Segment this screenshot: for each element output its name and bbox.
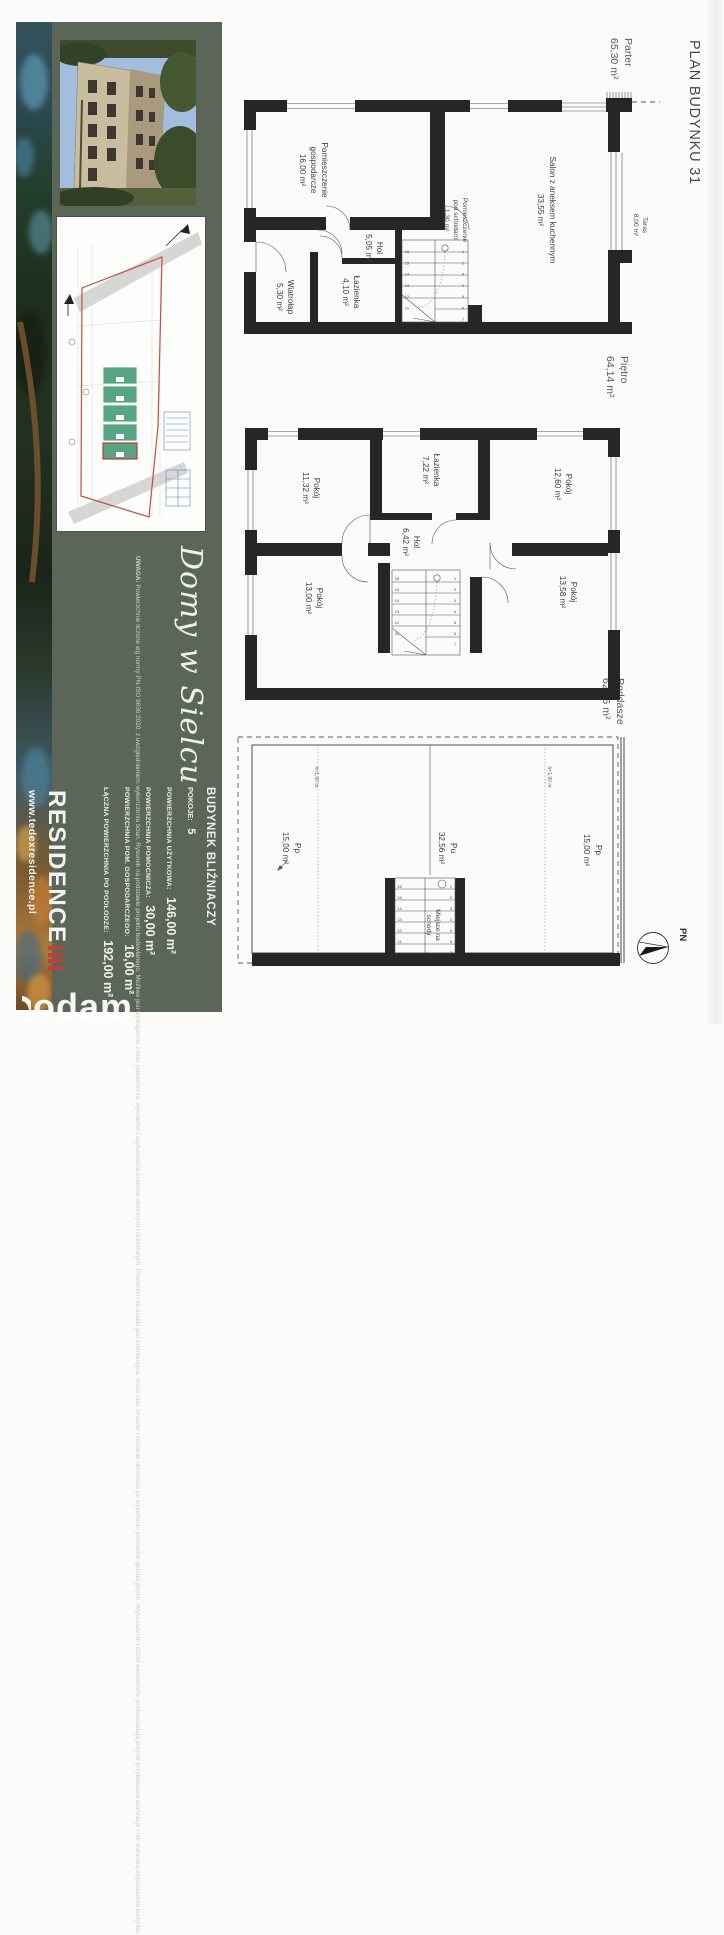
- building-type: BUDYNEK BLIŹNIACZY: [204, 787, 216, 997]
- page-title: PLAN BUDYNKU 31: [686, 40, 702, 185]
- tree-symbols: [69, 339, 89, 445]
- room-label: Pokój: [315, 588, 324, 609]
- svg-text:3: 3: [462, 272, 465, 277]
- svg-text:16: 16: [397, 884, 402, 889]
- svg-text:4: 4: [450, 917, 453, 922]
- svg-text:5: 5: [454, 620, 457, 625]
- room-area: 12,60 m²: [553, 468, 562, 501]
- room-area: 13,58 m²: [558, 576, 567, 609]
- floor-plan-parter: 1234567 161514131211 Pomieszczenie gospo…: [230, 90, 670, 348]
- hatch-ticks: [607, 92, 631, 98]
- svg-text:3: 3: [450, 906, 453, 911]
- svg-text:7: 7: [462, 317, 465, 322]
- room-label: Pokój: [564, 474, 573, 495]
- window: [248, 470, 253, 530]
- svg-text:2: 2: [450, 895, 453, 900]
- room-area: 1,30 m²: [443, 209, 450, 232]
- legal-note: UWAGA: Powierzchnie liczone wg normy PN-…: [132, 556, 142, 790]
- room-area: 15,00 m²: [582, 834, 591, 867]
- building-blocks: [103, 367, 137, 459]
- room-label: Pp: [594, 845, 603, 855]
- room-area: 11,32 m²: [301, 472, 310, 504]
- room-label: Hol: [412, 536, 421, 548]
- svg-text:5: 5: [462, 294, 465, 299]
- site-plan-drawing: [56, 216, 206, 532]
- room-label: Pp: [293, 843, 302, 853]
- logo-bar-icon: [48, 946, 63, 950]
- window: [611, 457, 616, 530]
- room-label: Salon z aneksem kuchennym: [548, 157, 557, 264]
- height-note: h=1,90 m: [313, 767, 319, 788]
- room-label: Łazienka: [432, 454, 441, 487]
- room-label: Miejsce na: [434, 909, 441, 941]
- stair-numbers: 161514131211: [397, 884, 402, 944]
- room-area: 6,42 m²: [401, 528, 410, 556]
- svg-text:3: 3: [454, 598, 457, 603]
- svg-text:13: 13: [395, 609, 400, 614]
- spec-row: POWIERZCHNIA POMOCNICZA: 30,00 m²: [141, 787, 159, 997]
- room-labels-pietro: Pokój 11,32 m² Łazienka 7,22 m² Pokój 12…: [301, 454, 578, 615]
- svg-text:11: 11: [405, 306, 410, 311]
- corner-block: [606, 98, 632, 112]
- room-label: Wiatrołap: [286, 280, 295, 315]
- note-title: UWAGA:: [134, 556, 141, 583]
- door-arcs: [342, 515, 516, 603]
- room-area: 4,10 m²: [341, 278, 350, 306]
- svg-text:14: 14: [397, 906, 402, 911]
- spec-row: POWIERZCHNIA POM. GOSPODARCZEGO: 16,00 m…: [120, 787, 138, 997]
- svg-text:1: 1: [462, 249, 465, 254]
- room-area: 15,00 m²: [281, 832, 290, 865]
- terrace-door-glazing: [611, 152, 616, 250]
- logo-text: RESIDENCE: [43, 790, 70, 944]
- svg-text:12: 12: [395, 620, 400, 625]
- room-label: Taras: [641, 217, 648, 234]
- logo-bar-icon: [48, 966, 63, 970]
- svg-text:16: 16: [405, 249, 410, 254]
- room-area: 5,05 m²: [364, 234, 373, 262]
- spec-row: POWIERZCHNIA UŻYTKOWA: 146,00 m²: [162, 787, 180, 997]
- floor-header-parter: Parter 65,30 m²: [607, 38, 634, 79]
- rooms-count-row: POKOJE: 5: [183, 787, 201, 997]
- room-area: 13,00 m²: [304, 582, 313, 615]
- site-plan-thumbnail: [56, 216, 206, 532]
- window: [248, 575, 253, 635]
- room-area: 33,55 m²: [536, 194, 545, 227]
- room-label: Pokój: [569, 582, 578, 603]
- stair-numbers: 161514131211: [395, 576, 400, 636]
- staircase: 1234567 161514131211: [402, 240, 468, 322]
- portal-watermark: odam: [22, 986, 133, 1028]
- svg-text:15: 15: [397, 895, 402, 900]
- brochure-page: Domy w Sielcu UWAGA: Powierzchnie liczon…: [0, 0, 724, 1024]
- road-band-bottom: [68, 462, 188, 524]
- page-edge-shadow: [706, 0, 724, 1024]
- svg-text:4: 4: [454, 609, 457, 614]
- staircase: 1234567 161514131211: [392, 570, 460, 655]
- floor-plan-pietro: 1234567 161514131211 Pokój 11,32 m² Łazi…: [230, 420, 670, 710]
- room-area: 16,00 m²: [298, 154, 307, 187]
- room-label: Pu: [449, 843, 458, 853]
- svg-text:1: 1: [450, 884, 453, 889]
- room-label: Łazienka: [352, 276, 361, 309]
- svg-text:12: 12: [405, 294, 410, 299]
- room-area: 32,56 m²: [437, 832, 446, 865]
- logo-bar-icon: [48, 959, 63, 963]
- compass-icon: [638, 933, 669, 964]
- svg-text:14: 14: [395, 598, 400, 603]
- stamp-annotations: [164, 412, 190, 506]
- svg-text:2: 2: [454, 587, 457, 592]
- svg-text:15: 15: [405, 260, 410, 265]
- stair-numbers: 1234567: [454, 576, 457, 647]
- house-photo: [60, 40, 196, 206]
- svg-text:1: 1: [454, 576, 457, 581]
- room-label: Pokój: [312, 478, 321, 499]
- height-note: h=1,90 m: [546, 767, 552, 788]
- room-label: pod schodami: [452, 199, 459, 241]
- room-labels-poddasze: Pp 15,00 m² Pu 32,56 m² Pp 15,00 m² h=1,…: [281, 767, 603, 867]
- room-area: 8,00 m²: [632, 214, 639, 237]
- room-label: Pomieszczenie: [461, 198, 468, 243]
- svg-text:15: 15: [395, 587, 400, 592]
- floor-plan-poddasze: 1234567 161514131211 Miejsce na schody P…: [225, 725, 695, 985]
- terrace-outline: [616, 153, 632, 263]
- logo-bar-icon: [48, 953, 63, 957]
- residence-logo: RESIDENCE: [42, 790, 70, 970]
- svg-text:14: 14: [405, 272, 410, 277]
- svg-text:13: 13: [405, 283, 410, 288]
- room-area: 7,22 m²: [421, 456, 430, 484]
- stair-numbers: 1234567: [450, 884, 453, 955]
- svg-text:16: 16: [395, 576, 400, 581]
- window: [247, 130, 252, 208]
- svg-text:5: 5: [450, 928, 453, 933]
- room-area: 5,30 m²: [275, 283, 284, 311]
- spec-row: ŁĄCZNA POWIERZCHNIA PO PODŁODZE: 192,00 …: [99, 787, 117, 997]
- brand-tagline-script: Domy w Sielcu: [173, 546, 208, 785]
- svg-text:4: 4: [462, 283, 465, 288]
- room-label: Pomieszczenie: [320, 142, 329, 198]
- svg-text:6: 6: [462, 306, 465, 311]
- watermark-fragment: [22, 993, 31, 1021]
- svg-text:12: 12: [397, 928, 402, 933]
- svg-text:6: 6: [450, 939, 453, 944]
- room-label: gospodarcze: [309, 147, 318, 194]
- svg-text:7: 7: [454, 642, 457, 647]
- room-label: schody: [425, 915, 432, 937]
- svg-text:6: 6: [454, 631, 457, 636]
- staircase: 1234567 161514131211 Miejsce na schody: [385, 878, 465, 955]
- floor-header-pietro: Piętro 64,14 m²: [603, 356, 630, 397]
- road-band-top: [74, 232, 202, 312]
- svg-text:13: 13: [397, 917, 402, 922]
- room-label: Hol: [375, 242, 384, 254]
- room-labels-parter: Pomieszczenie gospodarcze 16,00 m² Salon…: [275, 142, 648, 314]
- building-specs: BUDYNEK BLIŹNIACZY POKOJE: 5 POWIERZCHNI…: [96, 787, 216, 997]
- website-url: www.tedexresidence.pl: [26, 790, 38, 914]
- window: [611, 553, 616, 630]
- svg-text:11: 11: [397, 939, 402, 944]
- stair-numbers: 1234567: [462, 249, 465, 322]
